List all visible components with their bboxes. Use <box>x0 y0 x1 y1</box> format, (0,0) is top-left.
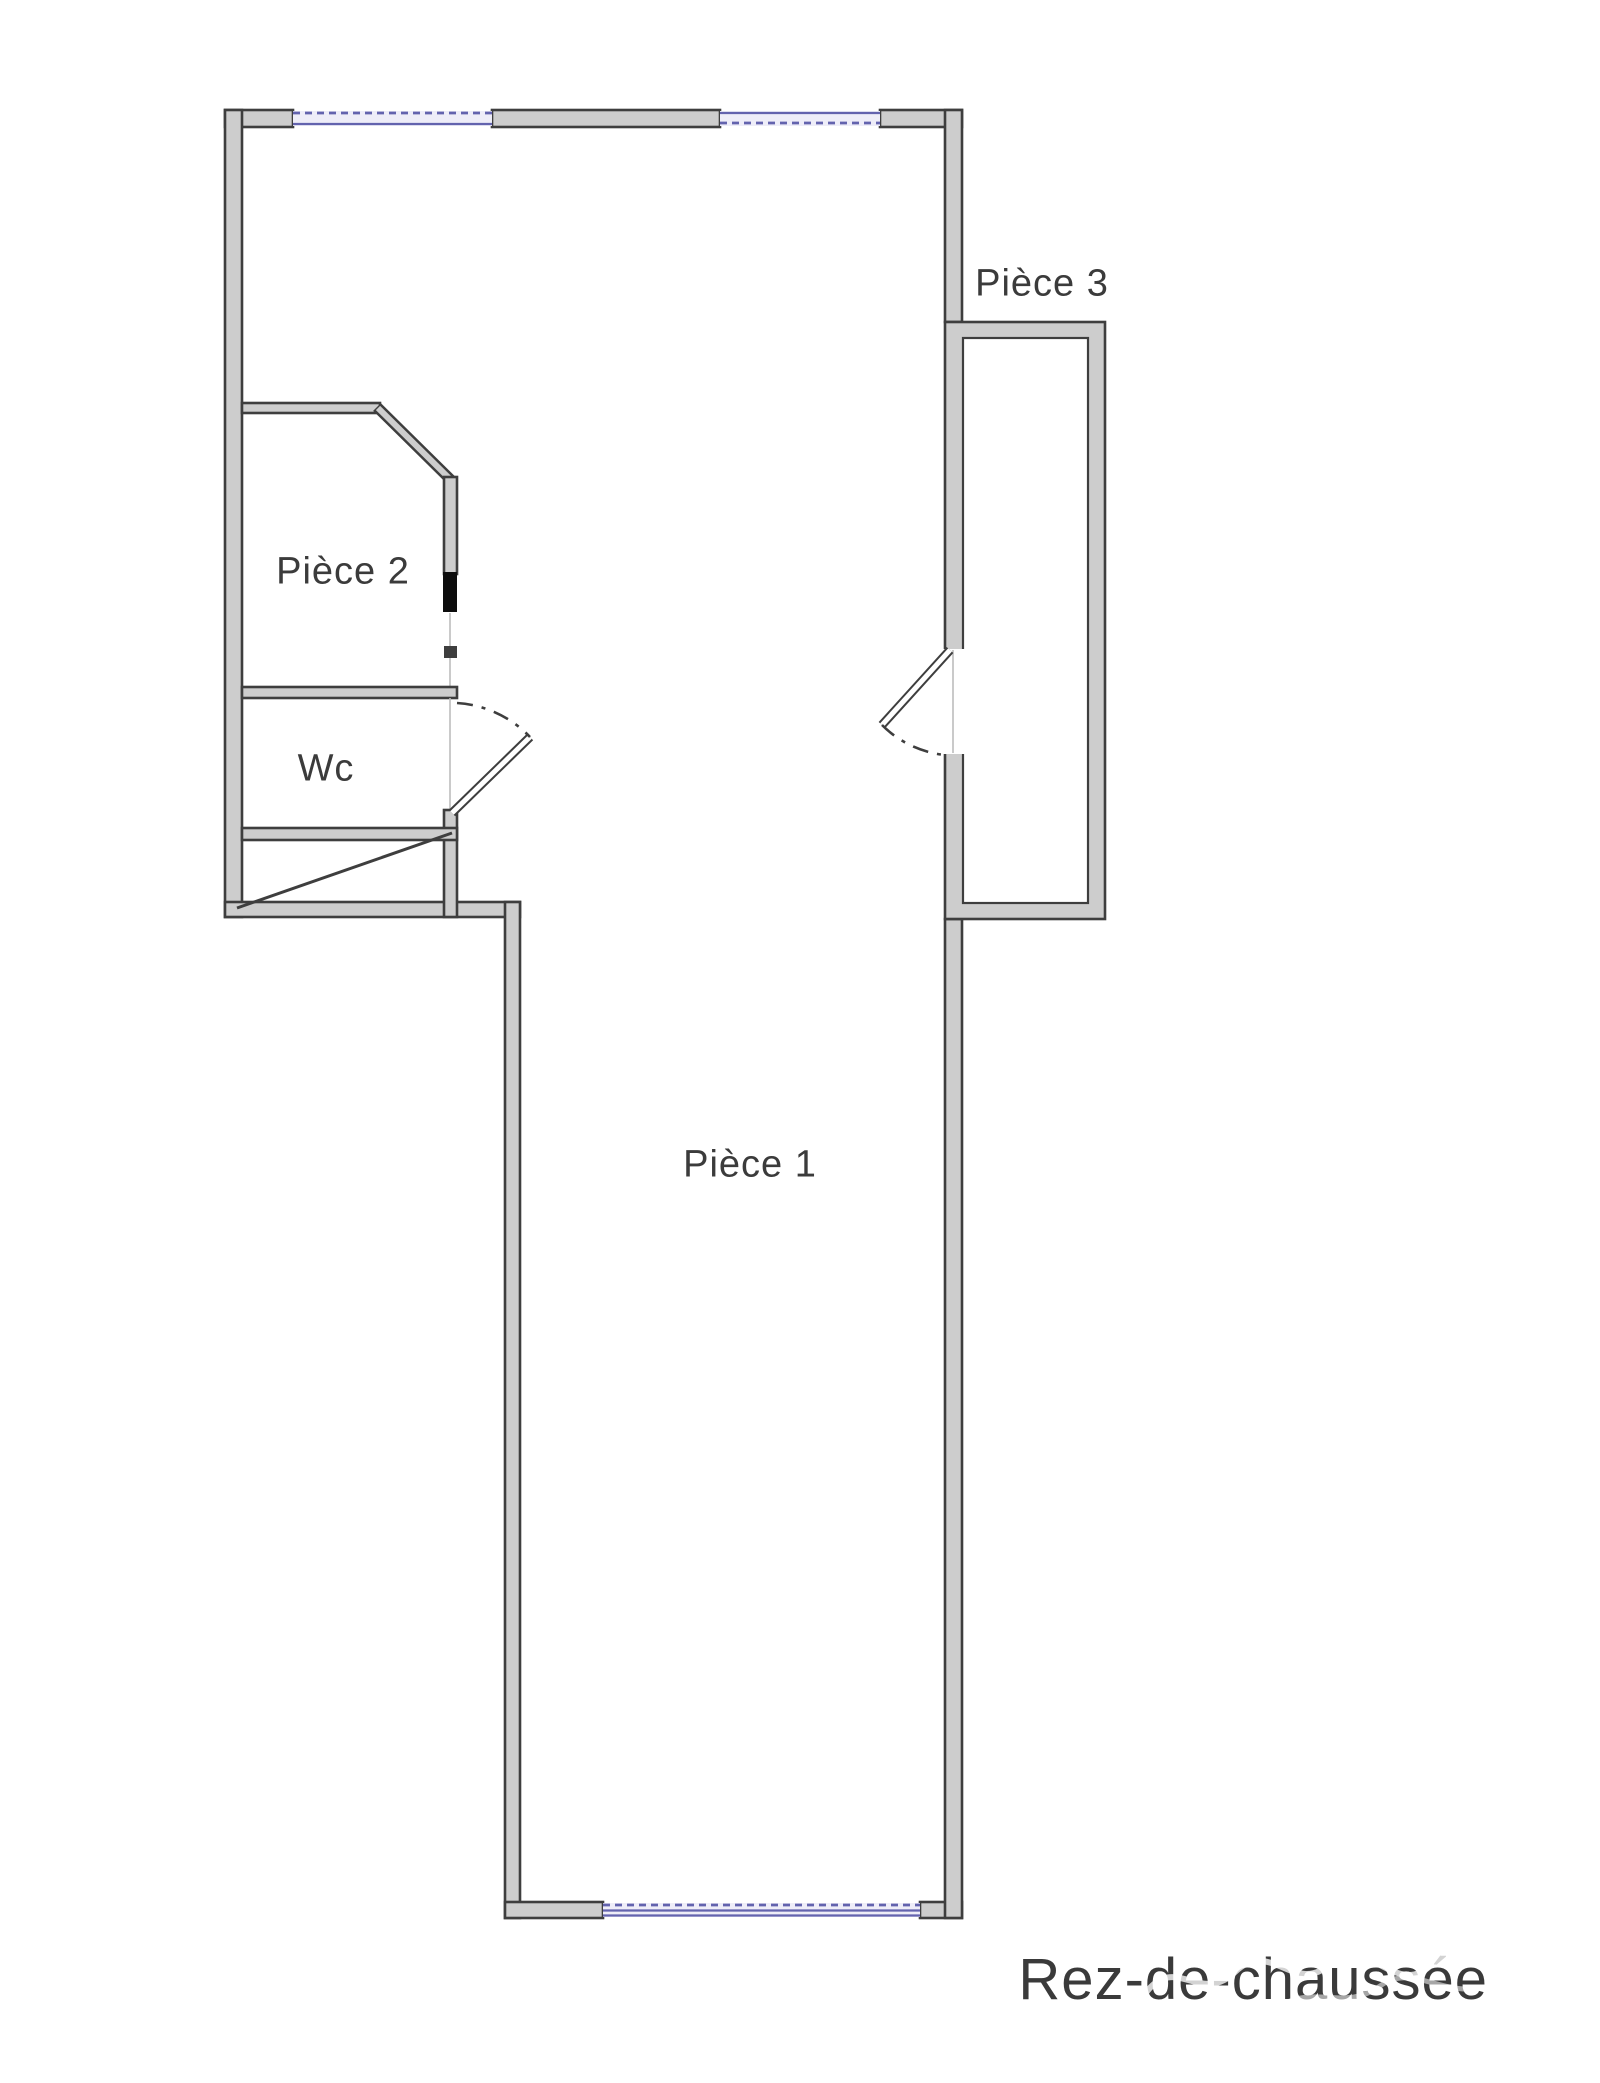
bottom-wall-left-segment <box>505 1902 603 1918</box>
piece-2-wall-stub <box>444 646 457 658</box>
right-wall-upper <box>945 110 962 322</box>
floorplan-drawing <box>0 0 1600 2083</box>
piece-2-bottom-wall <box>242 687 457 698</box>
floorplan-page: Pièce 1 Pièce 2 Pièce 3 Wc Rez-de-chauss… <box>0 0 1600 2083</box>
piece-3-door-opening <box>941 649 967 754</box>
piece-3-door-swing-arc <box>882 725 945 755</box>
wc-door-swing-arc <box>457 703 530 737</box>
piece-2-chamfer-core <box>378 408 451 480</box>
room-label-piece-2: Pièce 2 <box>276 551 410 594</box>
piece-2-right-wall <box>444 477 457 574</box>
wall-black-marker <box>443 572 457 612</box>
piece-3-door-leaf-core <box>882 650 950 725</box>
piece-3-room <box>882 322 1105 919</box>
wc-door-leaf-core <box>452 737 530 813</box>
room-label-wc: Wc <box>298 748 355 791</box>
piece-2-top-wall <box>242 403 380 413</box>
wc-right-wall <box>444 810 457 917</box>
piece-2-and-wc-walls <box>237 403 530 917</box>
floor-title: Rez-de-chaussée <box>1018 1946 1488 2013</box>
wc-bottom-wall <box>242 828 457 840</box>
lower-left-wall <box>505 902 520 1918</box>
outer-walls <box>225 110 962 1918</box>
room-label-piece-3: Pièce 3 <box>975 263 1109 306</box>
top-wall-middle-segment <box>492 110 720 127</box>
windows <box>293 111 920 1917</box>
room-label-piece-1: Pièce 1 <box>683 1144 817 1187</box>
piece-3-inner-area <box>963 338 1088 903</box>
entry-diagonal-line <box>237 833 452 908</box>
right-wall-lower <box>945 919 962 1918</box>
left-wall <box>225 110 242 917</box>
step-horizontal-wall <box>225 902 520 917</box>
